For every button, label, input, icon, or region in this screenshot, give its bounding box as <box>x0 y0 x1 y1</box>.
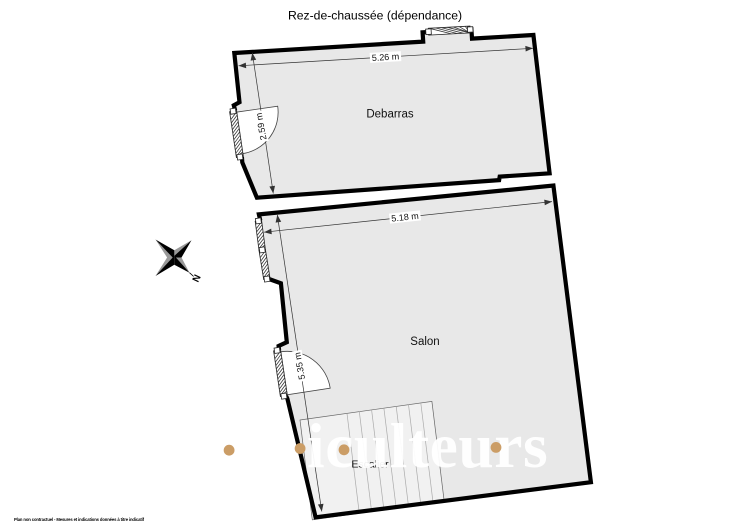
svg-text:5.26 m: 5.26 m <box>371 51 399 63</box>
svg-text:Debarras: Debarras <box>366 109 414 121</box>
svg-text:Plan non contractuel - Mesures: Plan non contractuel - Mesures et indica… <box>14 517 145 522</box>
svg-text:Salon: Salon <box>410 336 439 348</box>
svg-text:Rez-de-chaussée (dépendance): Rez-de-chaussée (dépendance) <box>288 9 462 23</box>
